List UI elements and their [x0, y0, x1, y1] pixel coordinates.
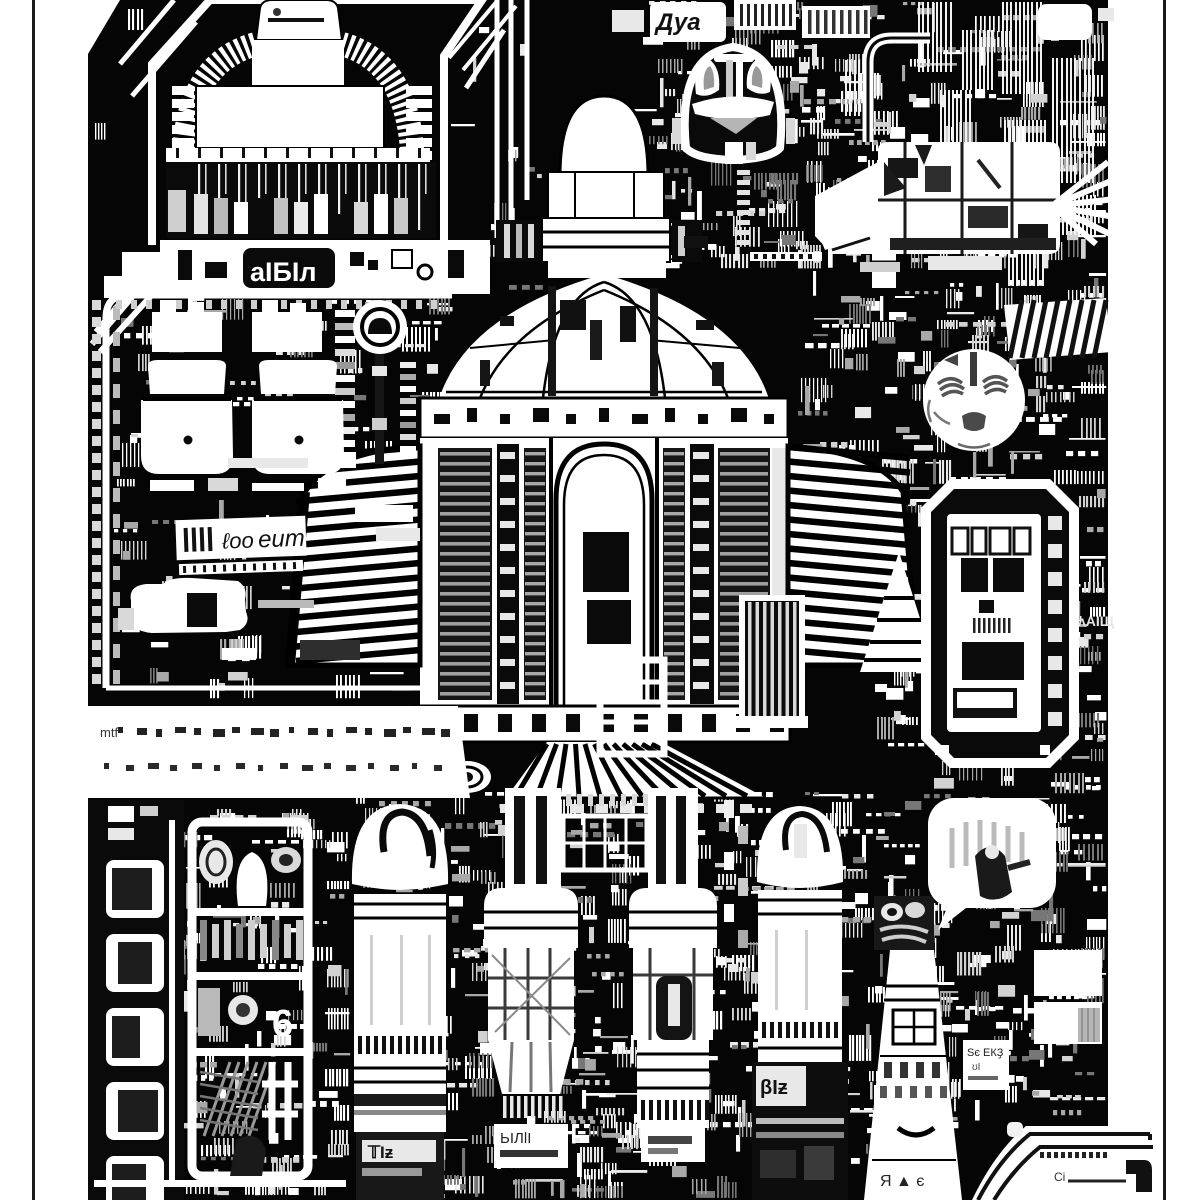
svg-text:6: 6 [272, 1003, 293, 1045]
svg-text:ʊӀ: ʊӀ [972, 1062, 980, 1073]
svg-text:βƖƶ: βƖƶ [760, 1077, 788, 1099]
svg-text:аƖБƖл: аƖБƖл [250, 257, 317, 287]
svg-text:Сі: Сі [1054, 1170, 1065, 1184]
svg-text:𝕋Iƶ: 𝕋Iƶ [367, 1143, 394, 1162]
svg-text:ℓoo: ℓoo [221, 528, 254, 554]
svg-text:Я ▲ є: Я ▲ є [880, 1173, 924, 1190]
svg-text:ЬІЛƖӀ: ЬІЛƖӀ [500, 1130, 531, 1147]
svg-text:Дуа: Дуа [654, 9, 701, 36]
svg-text:eum: eum [258, 525, 306, 554]
svg-text:mtf: mtf [100, 725, 118, 740]
svg-text:Ѕє ЕКҘ: Ѕє ЕКҘ [967, 1047, 1004, 1059]
svg-text:ʌАІЩ: ʌАІЩ [1078, 613, 1115, 629]
